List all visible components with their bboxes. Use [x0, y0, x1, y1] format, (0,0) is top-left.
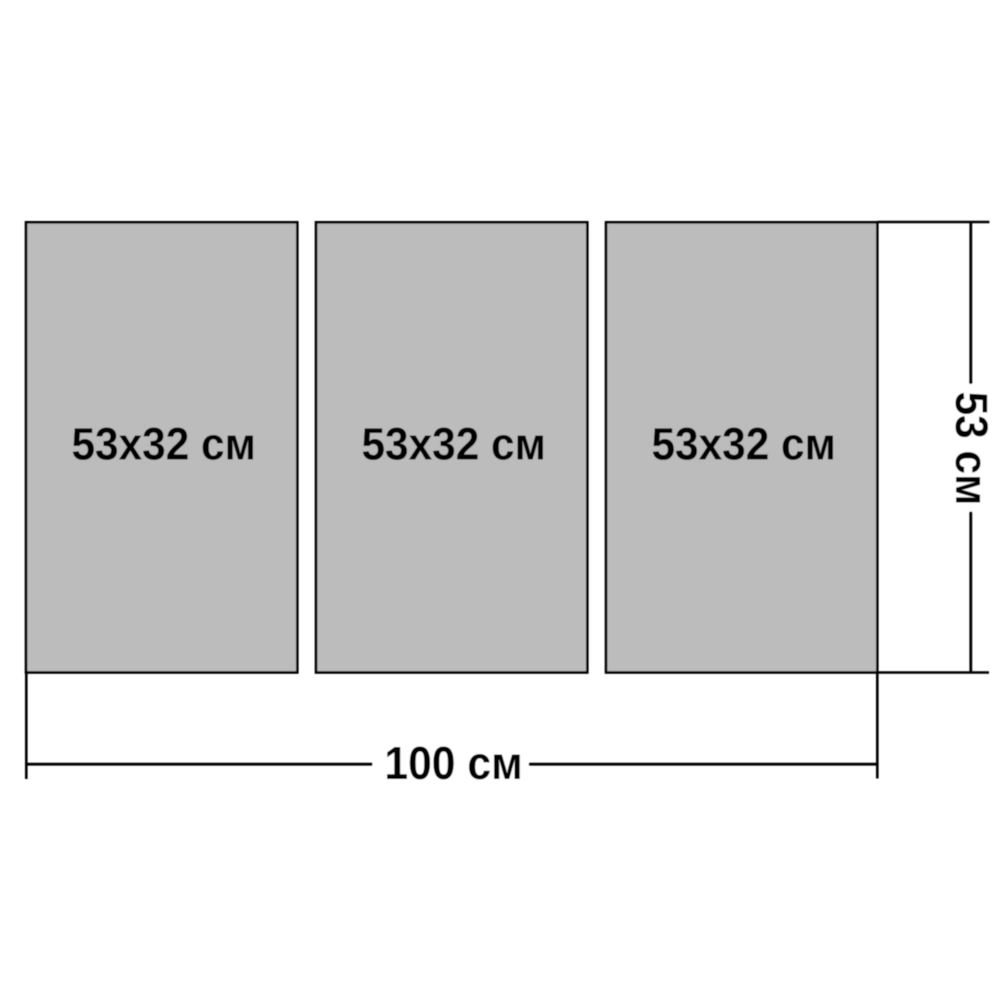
svg-text:53x32 см: 53x32 см — [71, 419, 256, 470]
svg-text:53 см: 53 см — [946, 392, 997, 506]
svg-text:100 см: 100 см — [384, 737, 522, 789]
svg-text:53x32 см: 53x32 см — [361, 419, 546, 470]
svg-text:53x32 см: 53x32 см — [651, 419, 836, 470]
